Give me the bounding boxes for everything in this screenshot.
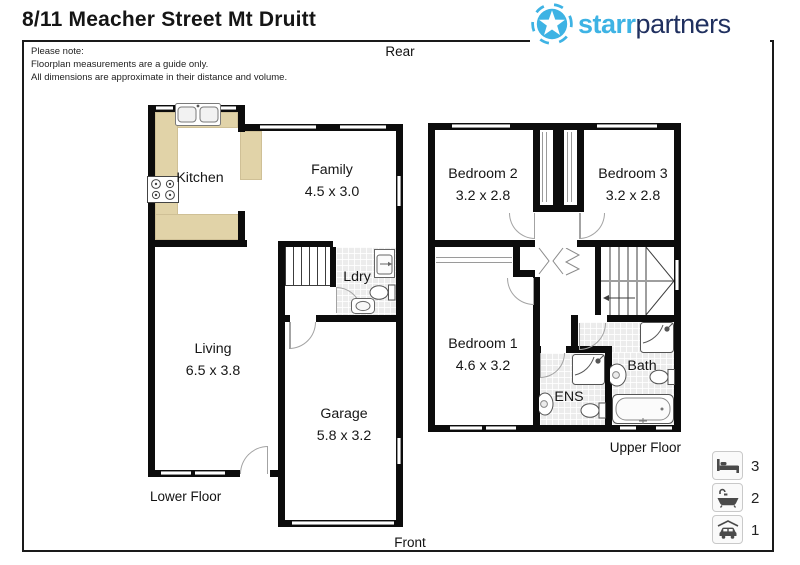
front-label: Front [380, 535, 440, 550]
staircase-lower [285, 247, 330, 286]
window [597, 124, 657, 128]
window [221, 106, 236, 110]
window [656, 426, 672, 430]
legend-baths [712, 483, 743, 512]
legend-beds [712, 451, 743, 480]
note-line: Floorplan measurements are a guide only. [31, 58, 287, 71]
wall [533, 205, 584, 212]
wall [553, 128, 564, 205]
door-leaf [579, 213, 581, 239]
room-label-bathroom: Bath [610, 355, 674, 377]
room-label-living: Living 6.5 x 3.8 [153, 338, 273, 382]
room-label-bedroom2: Bedroom 2 3.2 x 2.8 [433, 163, 533, 207]
cupboard-door-marks [538, 247, 564, 275]
room-dims: 4.6 x 3.2 [433, 355, 533, 377]
wall [515, 270, 535, 277]
wall [577, 123, 584, 212]
bath-icon [716, 488, 740, 508]
lower-floor-label: Lower Floor [150, 489, 221, 504]
room-dims: 3.2 x 2.8 [585, 185, 681, 207]
door-leaf [540, 353, 542, 378]
linen-bifold-marks [564, 248, 582, 276]
window [675, 260, 679, 290]
page-title: 8/11 Meacher Street Mt Druitt [22, 8, 316, 32]
room-name: Garage [285, 403, 403, 425]
room-label-ensuite: ENS [541, 386, 597, 408]
room-dims: 4.5 x 3.0 [272, 181, 392, 203]
wall [148, 105, 155, 477]
logo-text-starr: starr [578, 9, 636, 40]
room-name: Bedroom 3 [585, 163, 681, 185]
logo-text-partners: partners [636, 9, 731, 40]
room-label-bedroom3: Bedroom 3 3.2 x 2.8 [585, 163, 681, 207]
room-label-family: Family 4.5 x 3.0 [272, 159, 392, 203]
car-count: 1 [751, 522, 759, 539]
door-leaf [336, 287, 338, 313]
wall [577, 240, 681, 247]
door-leaf [579, 323, 581, 350]
wall [316, 315, 403, 322]
rear-label: Rear [370, 44, 430, 59]
bed-count: 3 [751, 458, 759, 475]
window [620, 426, 636, 430]
room-label-kitchen: Kitchen [150, 167, 250, 189]
wall [270, 470, 285, 477]
bath-count: 2 [751, 490, 759, 507]
kitchen-sink-icon [175, 103, 221, 126]
kitchen-counter [155, 214, 240, 240]
wall [278, 241, 333, 247]
staircase-upper [601, 247, 674, 315]
bed-icon [716, 457, 740, 475]
bathtub-icon [612, 394, 674, 424]
window [340, 125, 386, 129]
door-leaf [267, 446, 269, 474]
wall [533, 123, 540, 212]
room-name: Living [153, 338, 273, 360]
window [195, 471, 225, 475]
wall [607, 315, 681, 322]
upper-floor-label: Upper Floor [596, 440, 681, 455]
room-name: Family [272, 159, 392, 181]
wall [278, 315, 290, 322]
room-label-laundry: Ldry [331, 266, 383, 288]
basin-icon [351, 298, 375, 314]
disclaimer-note: Please note: Floorplan measurements are … [31, 45, 287, 84]
wall [148, 240, 247, 247]
note-line: All dimensions are approximate in their … [31, 71, 287, 84]
room-name: Bedroom 1 [433, 333, 533, 355]
wardrobe-sliding-door [567, 132, 572, 202]
wardrobe-sliding-door [436, 257, 512, 263]
window [452, 124, 510, 128]
room-dims: 6.5 x 3.8 [153, 360, 273, 382]
garage-door [292, 521, 394, 525]
note-line: Please note: [31, 45, 287, 58]
wall [533, 346, 541, 353]
shower-icon [640, 322, 674, 353]
wall [238, 211, 245, 247]
starr-partners-star-icon [530, 2, 574, 46]
floorplan-page: 8/11 Meacher Street Mt Druitt Please not… [0, 0, 800, 565]
window [397, 176, 401, 206]
wall [278, 241, 285, 527]
brand-logo: starrpartners [530, 2, 770, 46]
window [486, 426, 516, 430]
room-label-bedroom1: Bedroom 1 4.6 x 3.2 [433, 333, 533, 377]
door-leaf [533, 278, 535, 305]
window [450, 426, 482, 430]
window [156, 106, 173, 110]
car-icon [716, 520, 740, 539]
room-dims: 3.2 x 2.8 [433, 185, 533, 207]
window [161, 471, 191, 475]
wardrobe-sliding-door [542, 132, 547, 202]
door-leaf [534, 213, 536, 239]
room-label-garage: Garage 5.8 x 3.2 [285, 403, 403, 447]
room-dims: 5.8 x 3.2 [285, 425, 403, 447]
door-leaf [289, 322, 291, 349]
window [260, 125, 316, 129]
room-name: Bedroom 2 [433, 163, 533, 185]
shower-icon [572, 354, 605, 385]
legend-cars [712, 515, 743, 544]
